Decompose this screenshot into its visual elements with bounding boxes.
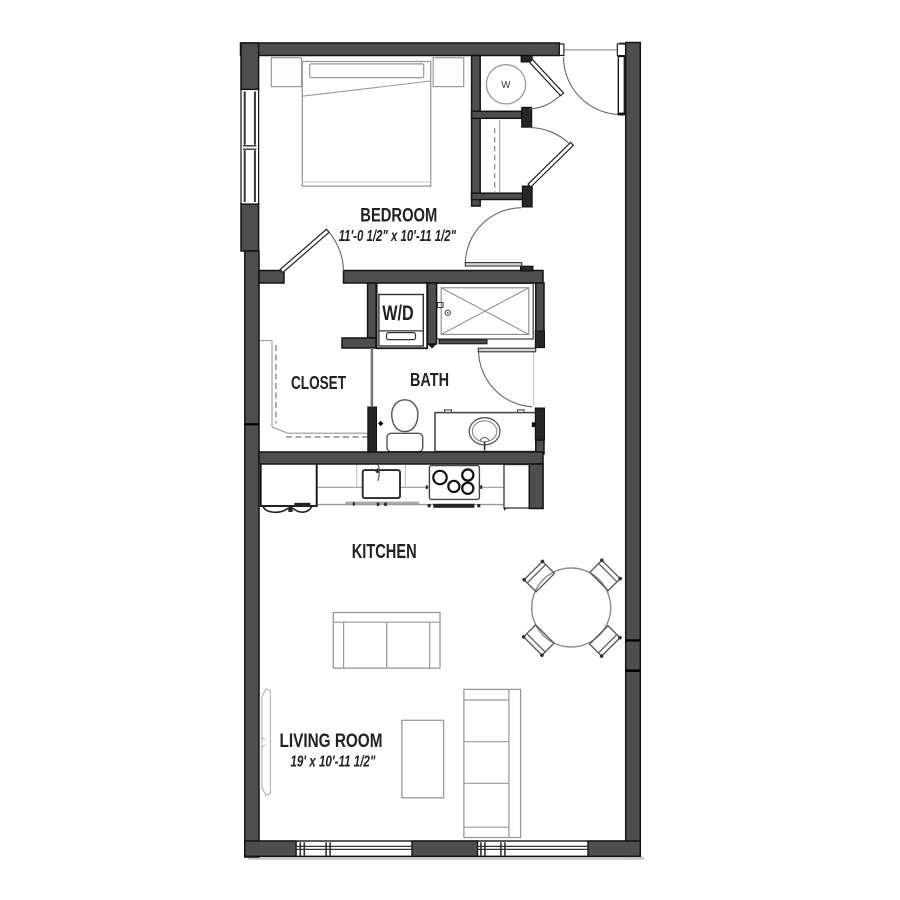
svg-text:BATH: BATH: [410, 370, 449, 390]
svg-text:11'-0 1/2" x 10'-11 1/2": 11'-0 1/2" x 10'-11 1/2": [339, 228, 457, 245]
svg-text:KITCHEN: KITCHEN: [352, 541, 417, 563]
svg-text:W: W: [501, 80, 511, 91]
svg-text:BEDROOM: BEDROOM: [360, 205, 437, 226]
svg-text:W/D: W/D: [382, 302, 414, 325]
svg-text:CLOSET: CLOSET: [291, 373, 346, 393]
svg-text:19' x 10'-11 1/2": 19' x 10'-11 1/2": [290, 753, 375, 770]
svg-text:LIVING ROOM: LIVING ROOM: [280, 731, 383, 752]
